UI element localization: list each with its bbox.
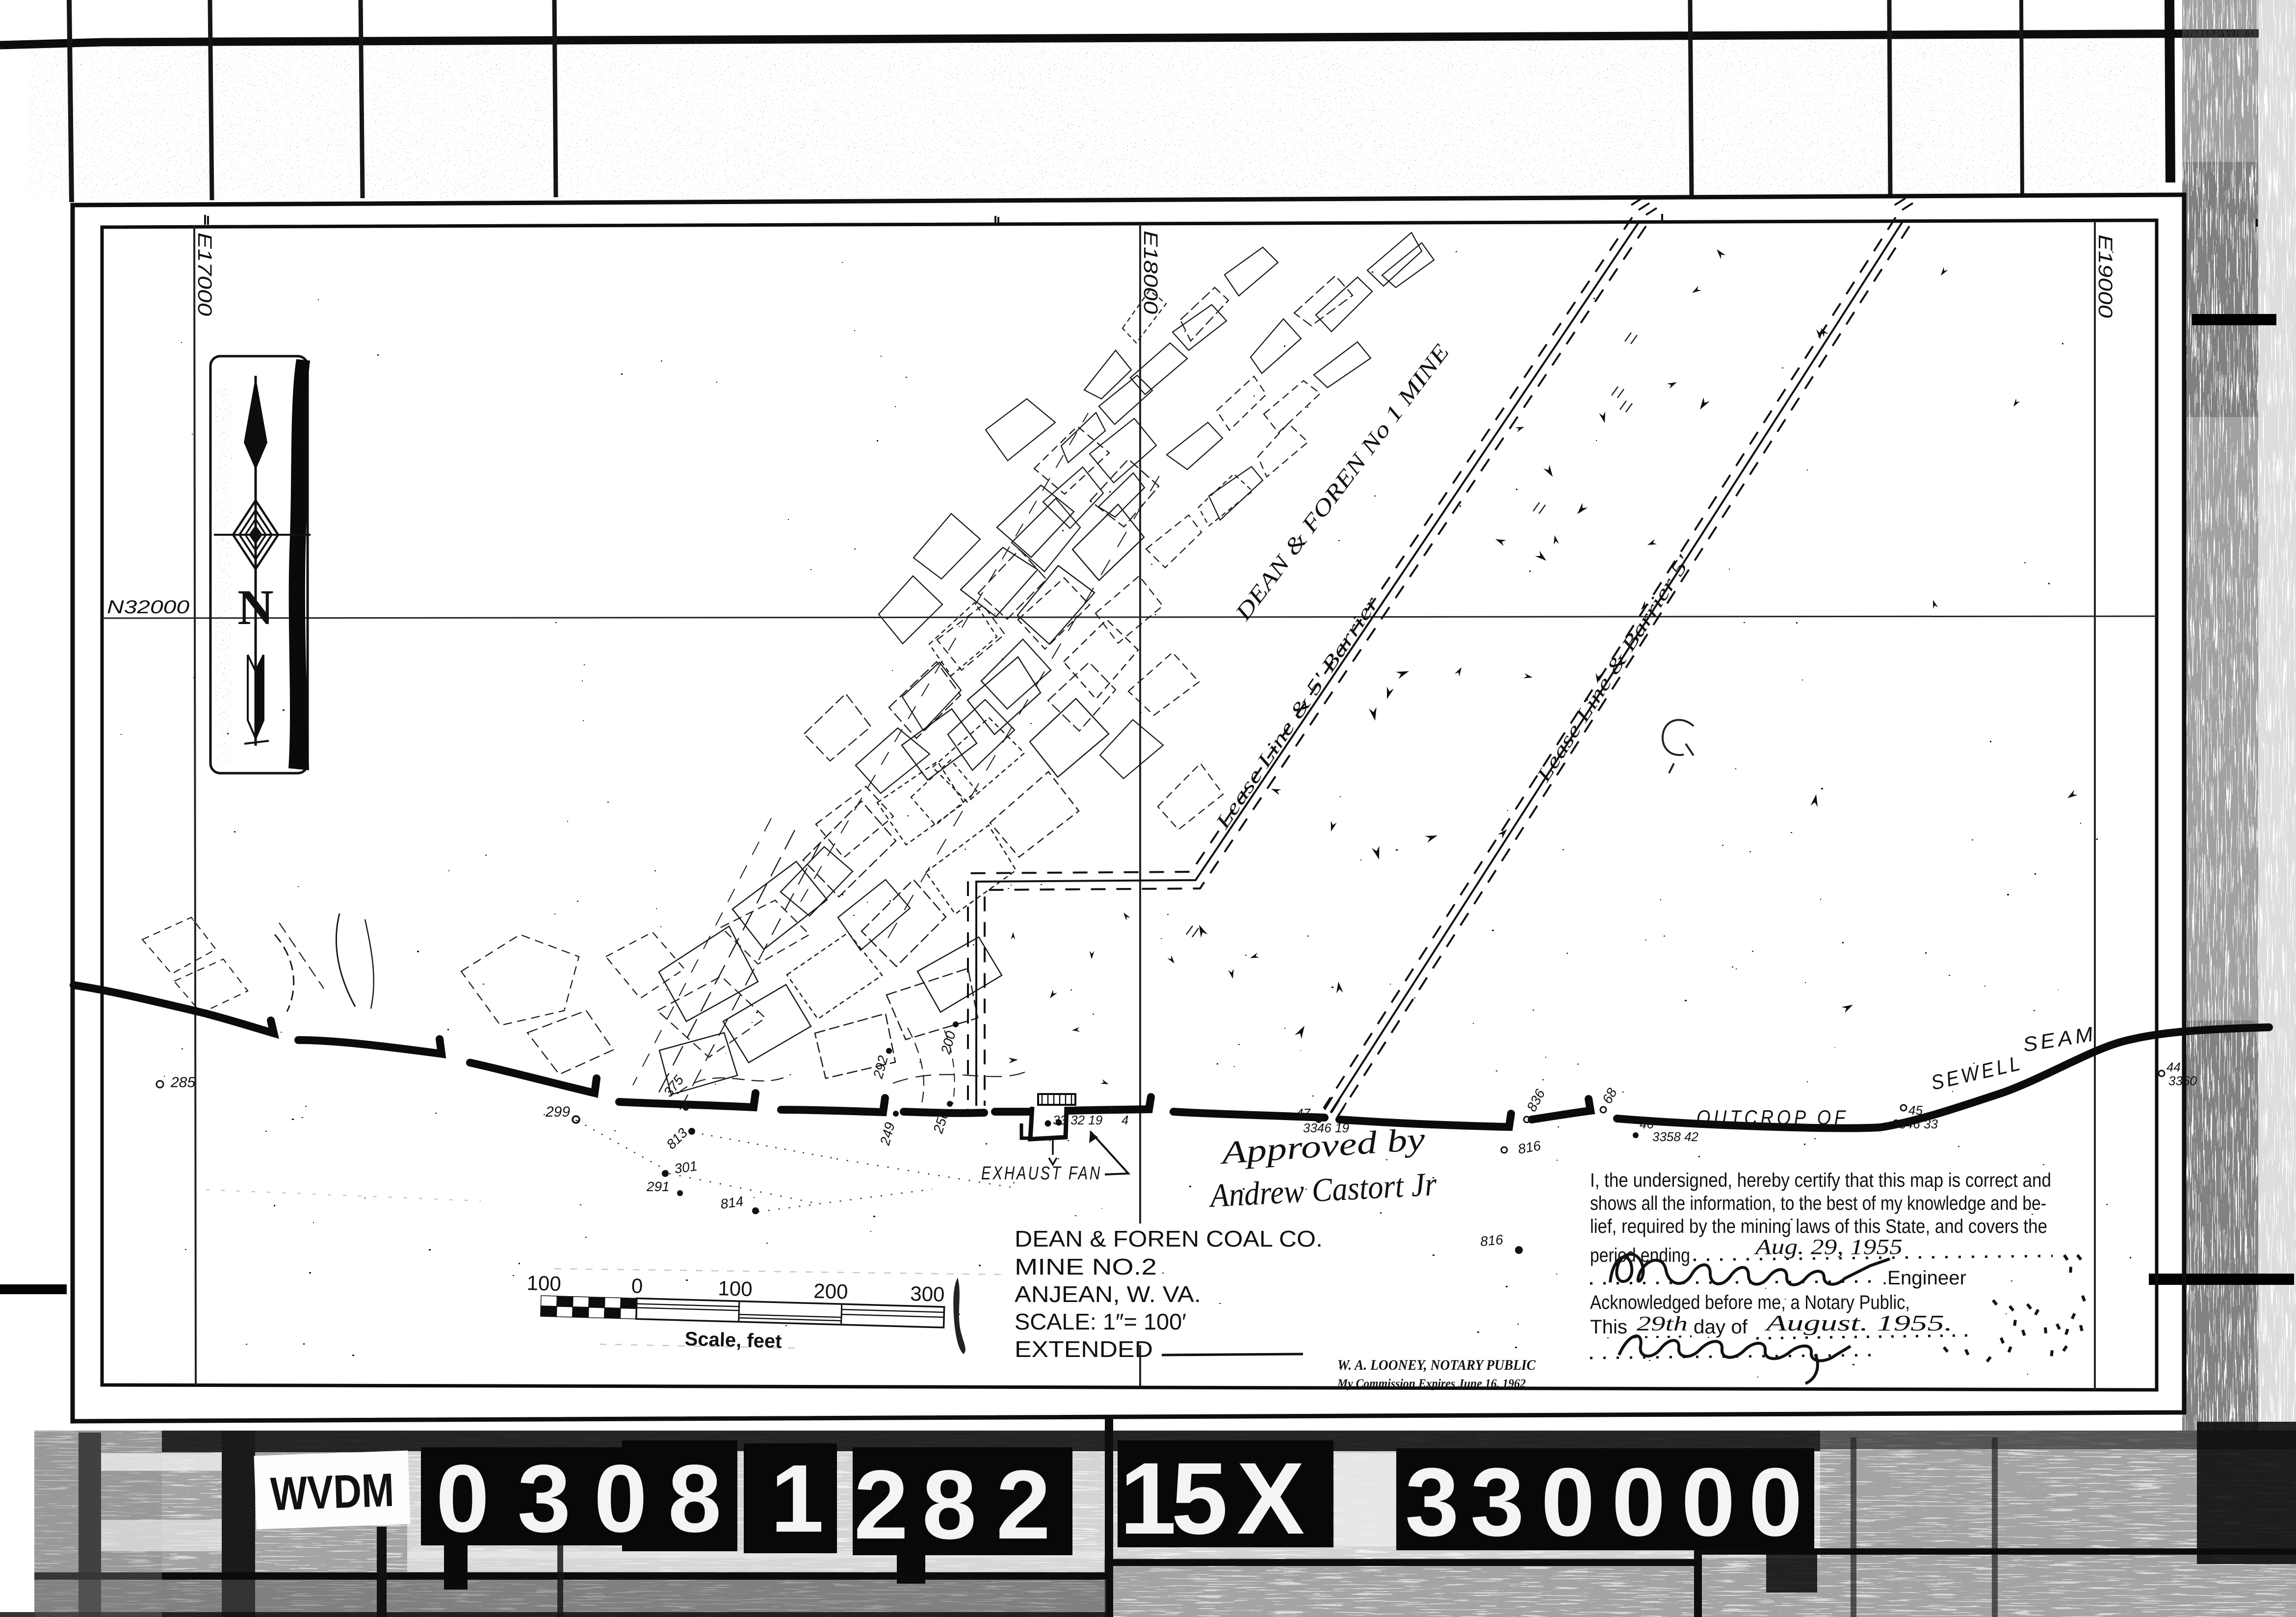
svg-text:299: 299 — [545, 1104, 570, 1120]
svg-text:E17000: E17000 — [194, 233, 215, 316]
svg-text:3: 3 — [517, 1445, 571, 1552]
svg-text:day of: day of — [1694, 1316, 1748, 1338]
svg-text:lief, required by the mining l: lief, required by the mining laws of thi… — [1590, 1216, 2047, 1237]
svg-text:200: 200 — [813, 1279, 848, 1304]
svg-text:2: 2 — [854, 1450, 908, 1560]
svg-text:N: N — [237, 580, 274, 635]
svg-text:3: 3 — [1470, 1448, 1524, 1556]
svg-text:3346 33: 3346 33 — [1892, 1117, 1938, 1131]
svg-text:8: 8 — [668, 1445, 721, 1552]
svg-text:1: 1 — [770, 1445, 824, 1552]
svg-text:0: 0 — [631, 1274, 643, 1298]
svg-text:3358 42: 3358 42 — [1652, 1129, 1699, 1144]
svg-text:100: 100 — [526, 1271, 561, 1295]
svg-text:100: 100 — [718, 1277, 753, 1301]
svg-text:X: X — [1237, 1442, 1305, 1556]
svg-text:29th: 29th — [1637, 1313, 1688, 1335]
svg-text:EXHAUST FAN: EXHAUST FAN — [981, 1163, 1102, 1184]
svg-text:291: 291 — [646, 1179, 670, 1194]
svg-text:0: 0 — [1748, 1448, 1802, 1556]
svg-text:814: 814 — [720, 1194, 745, 1212]
svg-text:EXTENDED: EXTENDED — [1015, 1336, 1153, 1362]
svg-text:3360: 3360 — [2168, 1073, 2197, 1088]
svg-text:ANJEAN, W. VA.: ANJEAN, W. VA. — [1015, 1281, 1201, 1307]
svg-text:OUTCROP OF: OUTCROP OF — [1696, 1106, 1849, 1129]
svg-text:0: 0 — [1612, 1448, 1666, 1556]
svg-text:My Commission Expires June 16,: My Commission Expires June 16, 1962 — [1337, 1377, 1526, 1390]
svg-text:This: This — [1590, 1316, 1627, 1338]
svg-text:816: 816 — [1480, 1232, 1504, 1249]
svg-text:285: 285 — [170, 1074, 195, 1091]
svg-text:45: 45 — [1908, 1103, 1923, 1118]
svg-text:2: 2 — [996, 1450, 1050, 1560]
svg-text:0: 0 — [436, 1445, 489, 1552]
svg-text:0: 0 — [1681, 1448, 1735, 1556]
svg-text:I, the undersigned, hereby cer: I, the undersigned, hereby certify that … — [1590, 1170, 2051, 1191]
svg-text:8: 8 — [922, 1450, 976, 1560]
svg-text:Scale, feet: Scale, feet — [684, 1328, 782, 1353]
svg-text:WVDM: WVDM — [269, 1464, 395, 1521]
svg-text:300: 300 — [910, 1282, 945, 1306]
svg-text:5: 5 — [1171, 1442, 1228, 1556]
svg-text:N32000: N32000 — [107, 597, 189, 618]
svg-text:E19000: E19000 — [2094, 235, 2116, 318]
svg-text:SCALE: 1″= 100′: SCALE: 1″= 100′ — [1015, 1309, 1186, 1334]
svg-text:E18000: E18000 — [1140, 231, 1161, 314]
svg-text:Aug. 29, 1955: Aug. 29, 1955 — [1753, 1235, 1903, 1259]
svg-text:shows all the information, to: shows all the information, to the best o… — [1590, 1193, 2046, 1214]
svg-text:4: 4 — [1122, 1113, 1128, 1127]
svg-text:47: 47 — [1296, 1106, 1311, 1121]
svg-text:.Engineer: .Engineer — [1882, 1267, 1966, 1289]
svg-text:W. A. LOONEY, NOTARY PUBLIC: W. A. LOONEY, NOTARY PUBLIC — [1337, 1357, 1536, 1373]
svg-text:0: 0 — [594, 1445, 647, 1552]
svg-text:44: 44 — [2166, 1060, 2181, 1074]
svg-text:0: 0 — [1541, 1448, 1595, 1556]
svg-text:1: 1 — [1120, 1442, 1176, 1556]
svg-text:301: 301 — [674, 1158, 699, 1176]
svg-text:DEAN & FOREN COAL CO.: DEAN & FOREN COAL CO. — [1015, 1226, 1323, 1252]
svg-text:MINE NO.2: MINE NO.2 — [1015, 1254, 1157, 1279]
svg-text:3: 3 — [1405, 1448, 1459, 1556]
svg-text:August. 1955.: August. 1955. — [1764, 1310, 1953, 1335]
